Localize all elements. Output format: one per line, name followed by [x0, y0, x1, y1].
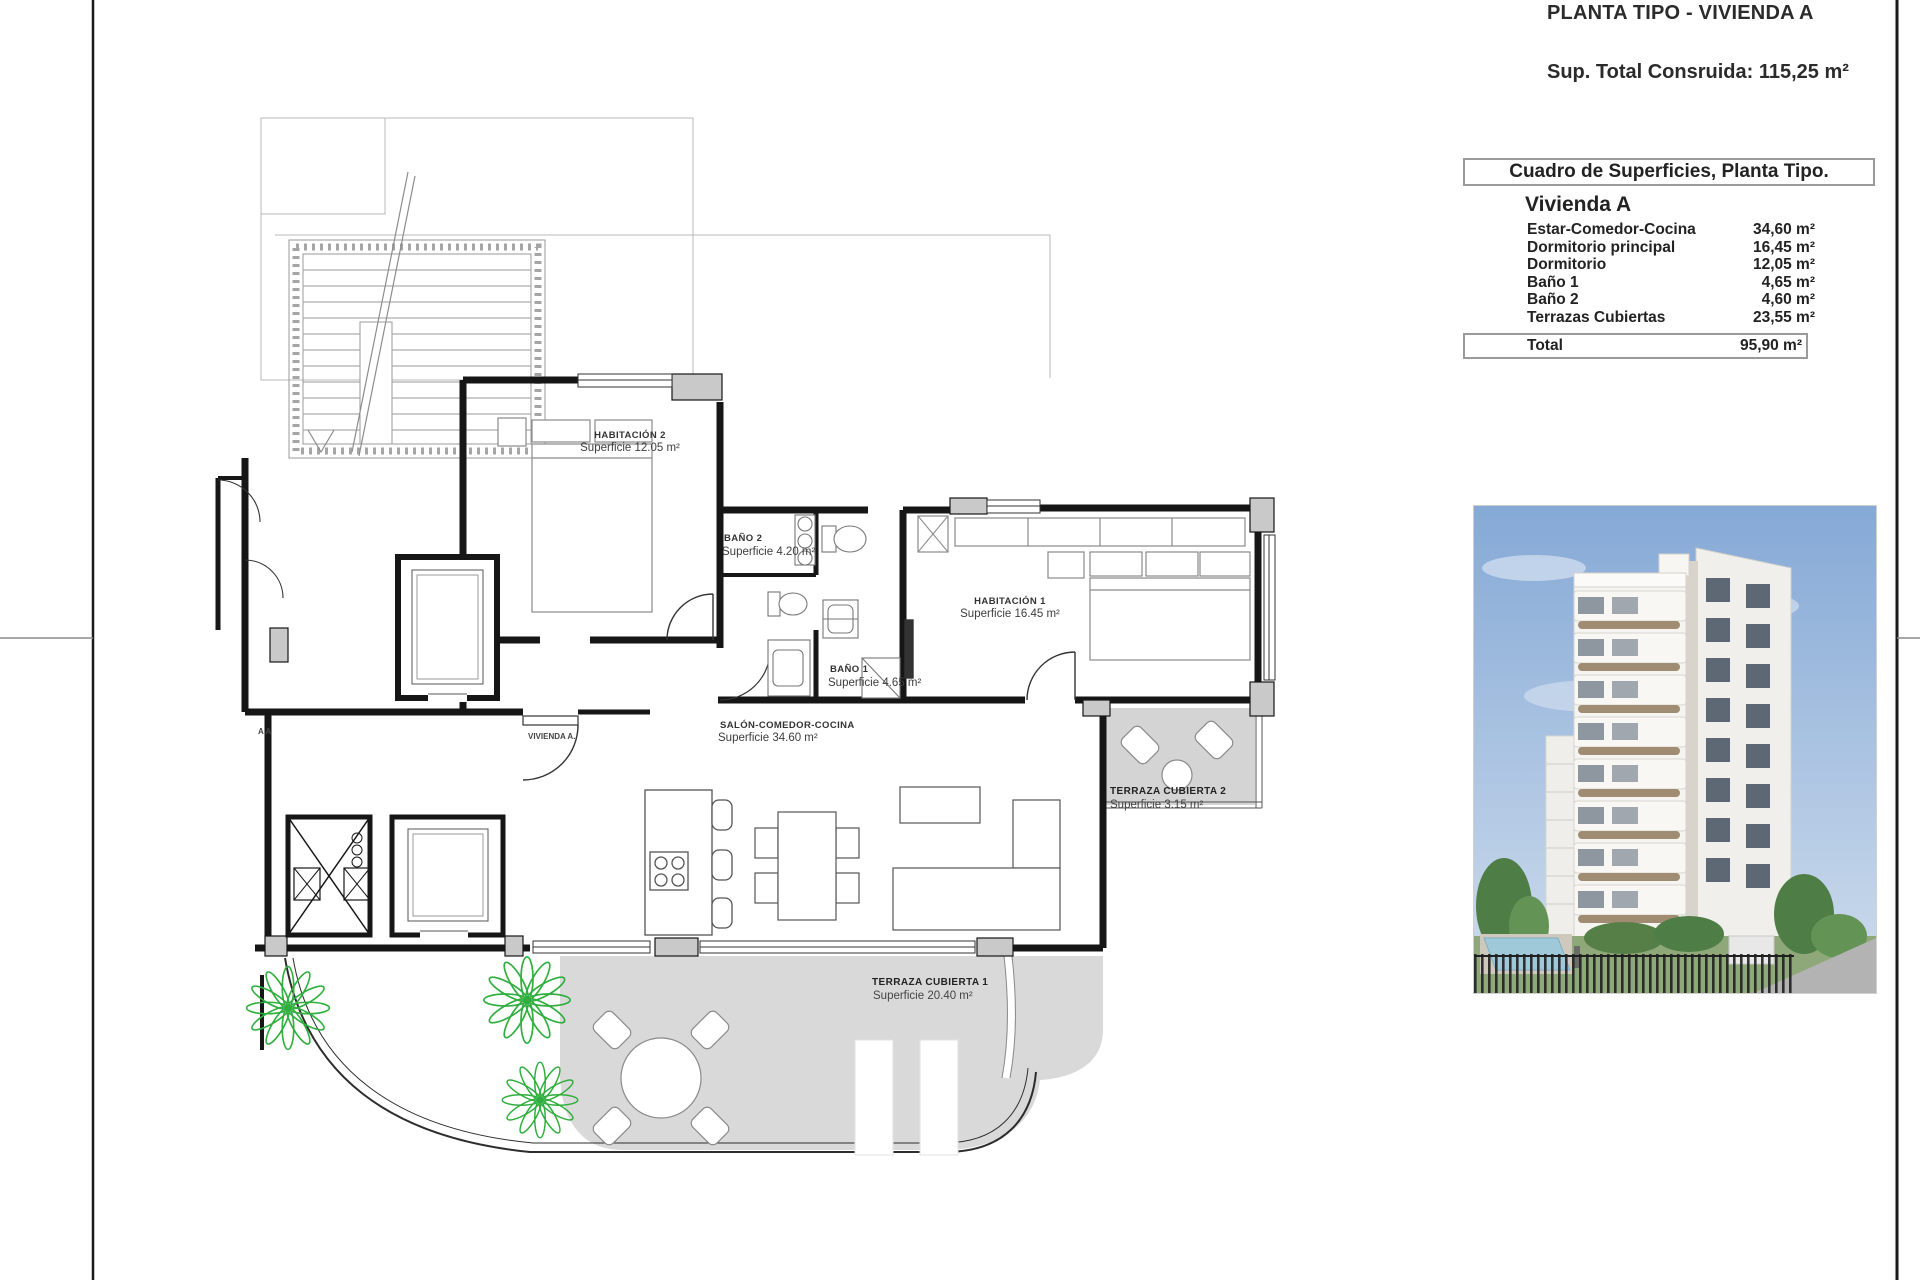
side-wing [1546, 736, 1576, 946]
shaft [288, 817, 370, 935]
plants [247, 957, 578, 1138]
sliding-door [905, 620, 913, 678]
svg-text:Superficie 16.45 m²: Superficie 16.45 m² [960, 608, 1060, 620]
building-photo [1473, 505, 1877, 994]
round-table [621, 1038, 701, 1118]
tower-recess [1686, 561, 1698, 964]
room-label-habitacion-2: HABITACIÓN 2 [594, 429, 666, 441]
room-label-terraza-1: TERRAZA CUBIERTA 1 [872, 977, 988, 988]
room-label-terraza-2: TERRAZA CUBIERTA 2 [1110, 786, 1226, 797]
stool [712, 800, 732, 830]
cloud-icon [1482, 555, 1586, 581]
staircase [289, 172, 545, 458]
bed-habitacion-1 [918, 516, 1250, 660]
stair-steps [303, 270, 531, 430]
svg-text:Superficie 3.15 m²: Superficie 3.15 m² [1110, 799, 1203, 811]
stool [712, 898, 732, 928]
sofa [893, 787, 1060, 930]
elevator-2 [392, 817, 503, 939]
room-label-bano-2: BAÑO 2 [724, 533, 762, 544]
stool [712, 850, 732, 880]
svg-text:Superficie 20.40 m²: Superficie 20.40 m² [873, 990, 973, 1002]
elevator-1 [398, 557, 497, 702]
kitchen-island [645, 790, 732, 935]
palm-plant-icon [247, 967, 330, 1050]
dining-set [755, 812, 859, 920]
room-label-salon: SALÓN-COMEDOR-COCINA [720, 719, 855, 731]
svg-text:Superficie 4.65 m²: Superficie 4.65 m² [828, 677, 921, 689]
svg-text:Superficie 12.05 m²: Superficie 12.05 m² [580, 442, 680, 454]
sun-lounger [855, 1040, 893, 1155]
room-label-bano-1: BAÑO 1 [830, 664, 869, 675]
svg-text:Superficie 4.20 m²: Superficie 4.20 m² [722, 546, 815, 558]
svg-text:Superficie 34.60 m²: Superficie 34.60 m² [718, 732, 818, 744]
nightstand [1048, 552, 1084, 578]
section-label: A A [258, 727, 271, 736]
fence [1474, 954, 1794, 993]
tower-left [1574, 573, 1686, 964]
room-label-habitacion-1: HABITACIÓN 1 [974, 595, 1046, 607]
sun-lounger [920, 1040, 958, 1155]
unit-label: VIVIENDA A. [528, 732, 575, 741]
entry-door-leaf [523, 716, 578, 725]
plan-sheet: PLANTA TIPO - VIVIENDA A Sup. Total Cons… [0, 0, 1920, 1280]
palm-plant-icon [484, 957, 570, 1043]
